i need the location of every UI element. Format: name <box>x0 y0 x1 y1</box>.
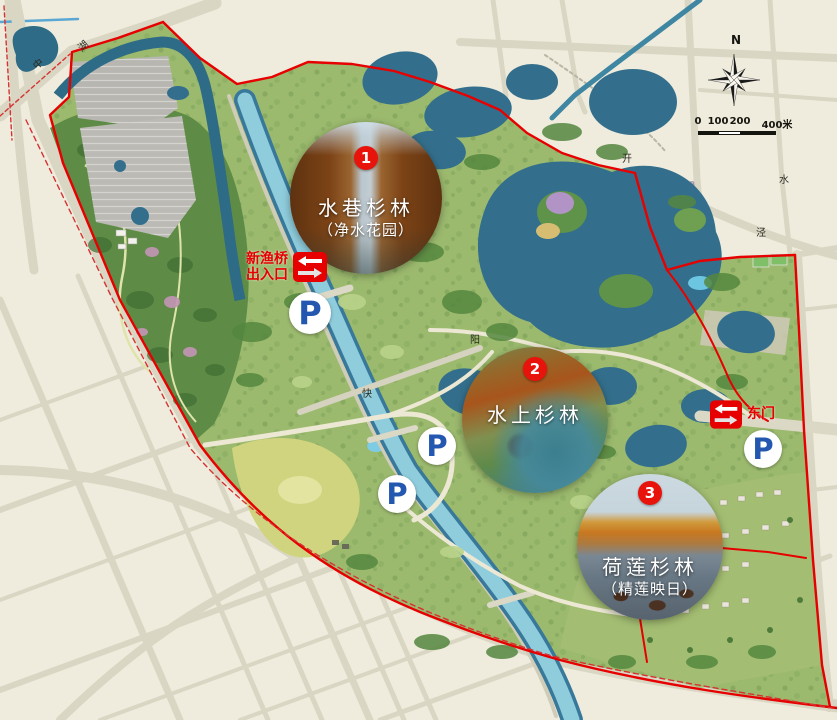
poi-number-badge: 3 <box>638 481 662 505</box>
gate-east[interactable]: 东门 <box>710 400 775 429</box>
scale-tick: 100 <box>708 116 729 127</box>
scale-tick: 0 <box>695 116 702 127</box>
compass-rose: N <box>702 26 766 118</box>
gate-label-line1: 新渔桥 <box>246 251 288 267</box>
poi-name: 水巷杉林 <box>290 192 442 221</box>
entrance-exit-icon <box>293 252 327 282</box>
road-label: 泾 <box>756 229 766 239</box>
parking-icon[interactable]: P <box>378 475 416 513</box>
compass-north-label: N <box>731 33 741 47</box>
parking-icon[interactable]: P <box>418 427 456 465</box>
poi-name: 水上杉林 <box>462 399 608 428</box>
gate-xinyuqiao-entrance[interactable]: 新渔桥 出入口 <box>246 251 327 283</box>
gate-label: 东门 <box>747 406 775 422</box>
poi-number-badge: 1 <box>354 146 378 170</box>
scale-bar: 0 100 200 400米 <box>688 116 808 142</box>
park-master-plan-map: 中 湖 快 阳 开 泾 水 1 水巷杉林 （净水花园） 2 水上杉林 3 荷莲杉… <box>0 0 837 720</box>
poi-helian-shanlin[interactable]: 3 荷莲杉林 （精莲映日） <box>577 474 723 620</box>
scale-bar-segment <box>740 131 776 135</box>
entrance-exit-icon <box>710 400 742 429</box>
parking-icon[interactable]: P <box>744 430 782 468</box>
poi-subtitle: （精莲映日） <box>577 578 723 599</box>
scale-tick: 400米 <box>762 116 793 131</box>
poi-name: 荷莲杉林 <box>577 551 723 580</box>
poi-shuishang-shanlin[interactable]: 2 水上杉林 <box>462 347 608 493</box>
scale-bar-segment <box>718 131 742 135</box>
poi-number-badge: 2 <box>523 357 547 381</box>
poi-subtitle: （净水花园） <box>290 219 442 240</box>
gate-label-line1: 东门 <box>747 406 775 422</box>
road-label: 水 <box>779 176 789 186</box>
gate-label: 新渔桥 出入口 <box>246 251 288 283</box>
road-label: 开 <box>622 155 632 165</box>
road-label: 阳 <box>470 336 480 346</box>
parking-icon[interactable]: P <box>289 292 331 334</box>
road-label: 快 <box>362 390 372 400</box>
scale-tick: 200 <box>730 116 751 127</box>
scale-bar-segment <box>698 131 718 135</box>
gate-label-line2: 出入口 <box>246 267 288 283</box>
